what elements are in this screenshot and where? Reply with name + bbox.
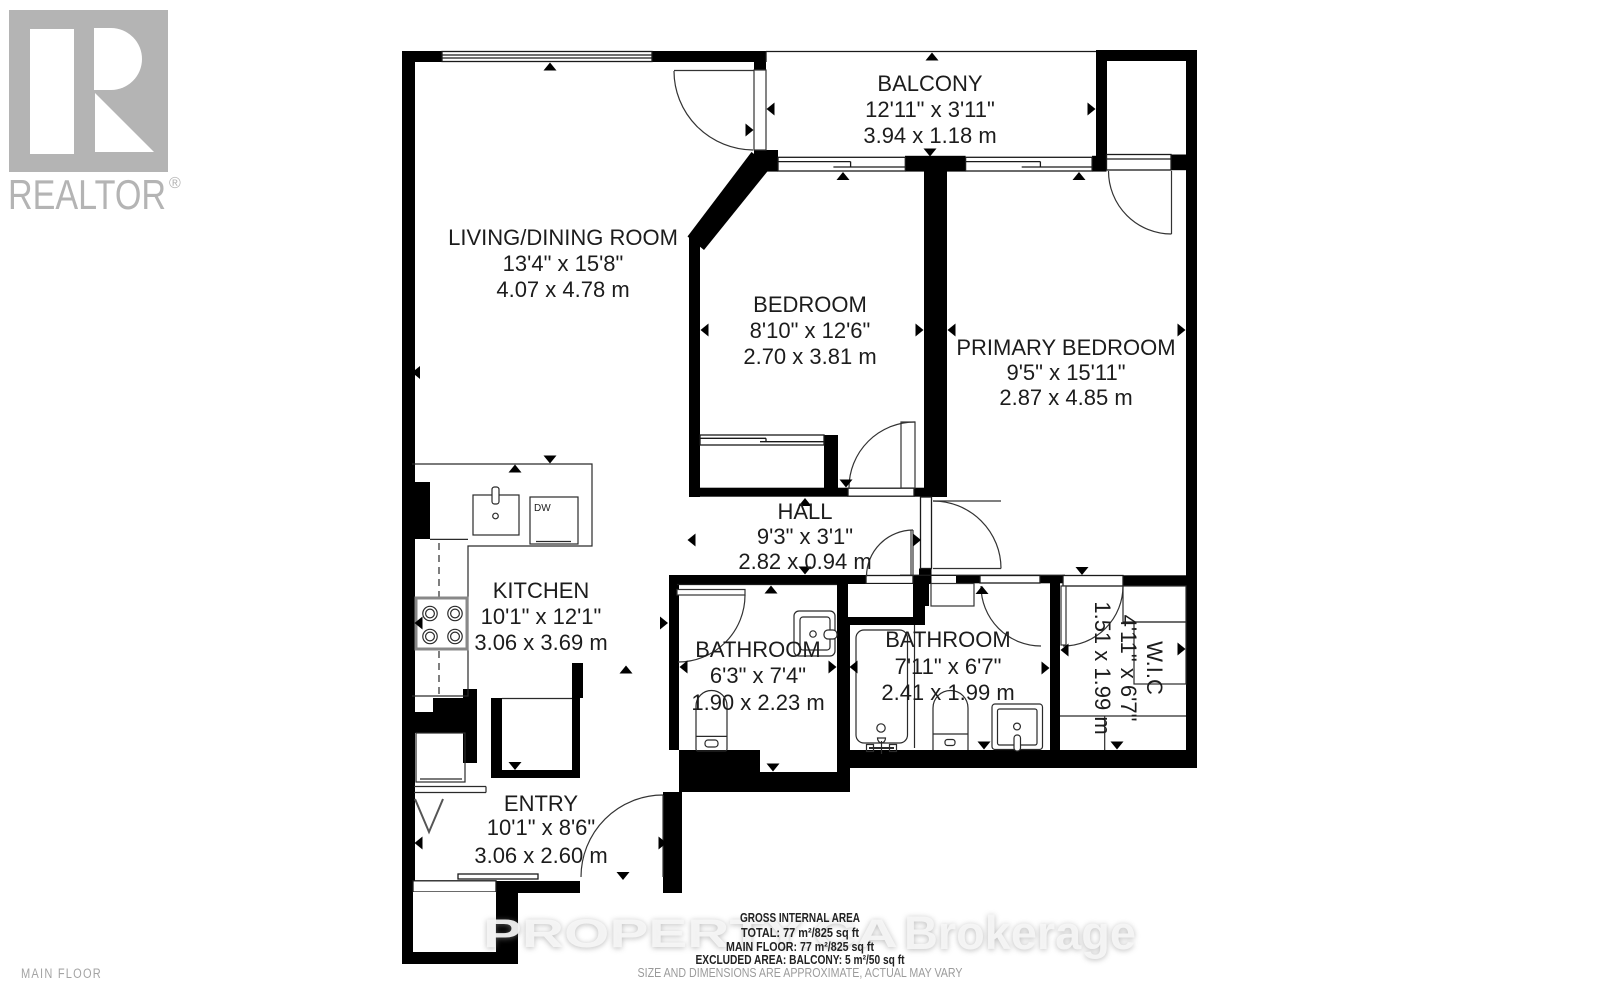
- svg-text:12'11" x 3'11": 12'11" x 3'11": [865, 97, 995, 122]
- svg-text:Brokerage: Brokerage: [904, 906, 1136, 959]
- svg-text:REALTOR: REALTOR: [8, 171, 166, 218]
- svg-text:13'4" x 15'8": 13'4" x 15'8": [503, 251, 624, 276]
- svg-text:2.82 x 0.94 m: 2.82 x 0.94 m: [738, 549, 871, 574]
- svg-text:HALL: HALL: [777, 499, 832, 524]
- svg-text:SIZE AND DIMENSIONS ARE APPROX: SIZE AND DIMENSIONS ARE APPROXIMATE, ACT…: [638, 965, 963, 980]
- svg-text:8'10" x 12'6": 8'10" x 12'6": [750, 318, 871, 343]
- svg-text:BEDROOM: BEDROOM: [753, 292, 867, 317]
- svg-text:LIVING/DINING ROOM: LIVING/DINING ROOM: [448, 225, 678, 250]
- svg-text:DW: DW: [534, 503, 551, 514]
- svg-text:4.07 x 4.78 m: 4.07 x 4.78 m: [496, 277, 629, 302]
- svg-text:4'11" x 6'7": 4'11" x 6'7": [1116, 615, 1141, 722]
- svg-text:2.70 x 3.81 m: 2.70 x 3.81 m: [743, 344, 876, 369]
- svg-text:7'11" x 6'7": 7'11" x 6'7": [895, 654, 1002, 679]
- svg-text:ENTRY: ENTRY: [504, 791, 578, 816]
- svg-text:®: ®: [169, 175, 181, 192]
- svg-text:3.06 x 3.69 m: 3.06 x 3.69 m: [474, 630, 607, 655]
- svg-text:3.94 x 1.18 m: 3.94 x 1.18 m: [863, 123, 996, 148]
- svg-text:10'1" x 8'6": 10'1" x 8'6": [487, 815, 595, 840]
- svg-text:9'3" x 3'1": 9'3" x 3'1": [757, 524, 853, 549]
- svg-text:3.06 x 2.60 m: 3.06 x 2.60 m: [474, 843, 607, 868]
- svg-text:GROSS INTERNAL AREA: GROSS INTERNAL AREA: [740, 910, 860, 925]
- svg-text:BALCONY: BALCONY: [877, 71, 982, 96]
- svg-text:MAIN FLOOR: MAIN FLOOR: [21, 966, 102, 981]
- svg-text:10'1" x 12'1": 10'1" x 12'1": [481, 604, 602, 629]
- svg-text:1.51 x 1.99 m: 1.51 x 1.99 m: [1090, 601, 1115, 734]
- svg-text:W.I.C: W.I.C: [1142, 641, 1167, 695]
- svg-text:BATHROOM: BATHROOM: [695, 637, 820, 662]
- svg-text:KITCHEN: KITCHEN: [493, 578, 590, 603]
- svg-text:TOTAL: 77 m²/825 sq ft: TOTAL: 77 m²/825 sq ft: [741, 925, 860, 940]
- svg-text:9'5" x 15'11": 9'5" x 15'11": [1006, 360, 1125, 385]
- svg-text:2.87 x 4.85 m: 2.87 x 4.85 m: [999, 385, 1132, 410]
- svg-text:6'3" x 7'4": 6'3" x 7'4": [710, 663, 806, 688]
- svg-text:PRIMARY BEDROOM: PRIMARY BEDROOM: [956, 335, 1175, 360]
- svg-text:BATHROOM: BATHROOM: [885, 627, 1010, 652]
- svg-text:1.90 x 2.23 m: 1.90 x 2.23 m: [691, 690, 824, 715]
- svg-text:2.41 x 1.99 m: 2.41 x 1.99 m: [881, 680, 1014, 705]
